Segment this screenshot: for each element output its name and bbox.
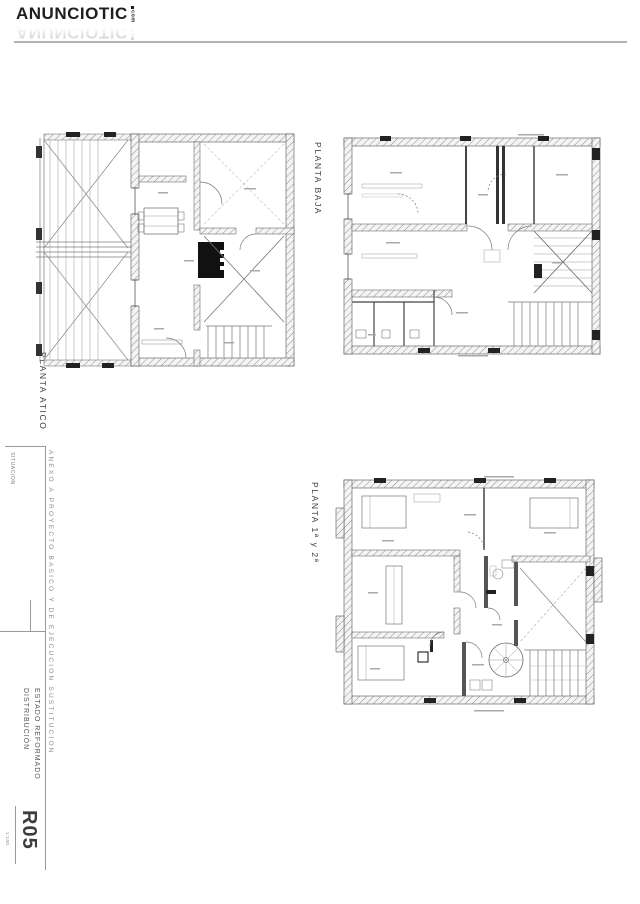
sheet-code-rule [15, 806, 16, 864]
floorplan-baja-drawing [338, 134, 606, 358]
titleblock-top-rule [5, 446, 46, 447]
logo-com-text: com [130, 10, 136, 23]
sheet-scale: 1:100 [5, 832, 10, 845]
titleblock-project-note: ANEXO A PROYECTO BASICO Y DE EJECUCION S… [47, 450, 54, 755]
drawing-sheet: ANUNCIOTIC com ANUNCIOTIC com PLANTA ATI… [0, 0, 640, 904]
header-divider [14, 41, 627, 43]
label-planta-baja: PLANTA BAJA [313, 142, 323, 215]
floorplan-atico-drawing [36, 130, 296, 370]
logo-tld: com [130, 6, 136, 23]
titleblock-cell-rule [30, 600, 31, 631]
site-logo[interactable]: ANUNCIOTIC com ANUNCIOTIC com [16, 5, 136, 41]
floorplan-p1y2-drawing [334, 474, 606, 718]
titleblock-vertical-rule [45, 446, 46, 870]
titleblock-situacion: SITUACION [9, 452, 15, 485]
titleblock-estado-line1: ESTADO REFORMADO [31, 688, 42, 780]
titleblock-mid-rule [0, 631, 46, 632]
logo-dot-icon [131, 6, 134, 9]
titleblock-estado-line2: DISTRIBUCIÓN [20, 688, 31, 780]
logo-reflection: ANUNCIOTIC com [16, 23, 136, 41]
logo-text: ANUNCIOTIC [16, 5, 128, 23]
titleblock-estado: ESTADO REFORMADO DISTRIBUCIÓN [20, 688, 42, 780]
label-planta-1y2: PLANTA 1ª y 2ª [310, 482, 320, 563]
sheet-code: R05 [17, 810, 40, 850]
logo-main: ANUNCIOTIC com [16, 5, 136, 23]
